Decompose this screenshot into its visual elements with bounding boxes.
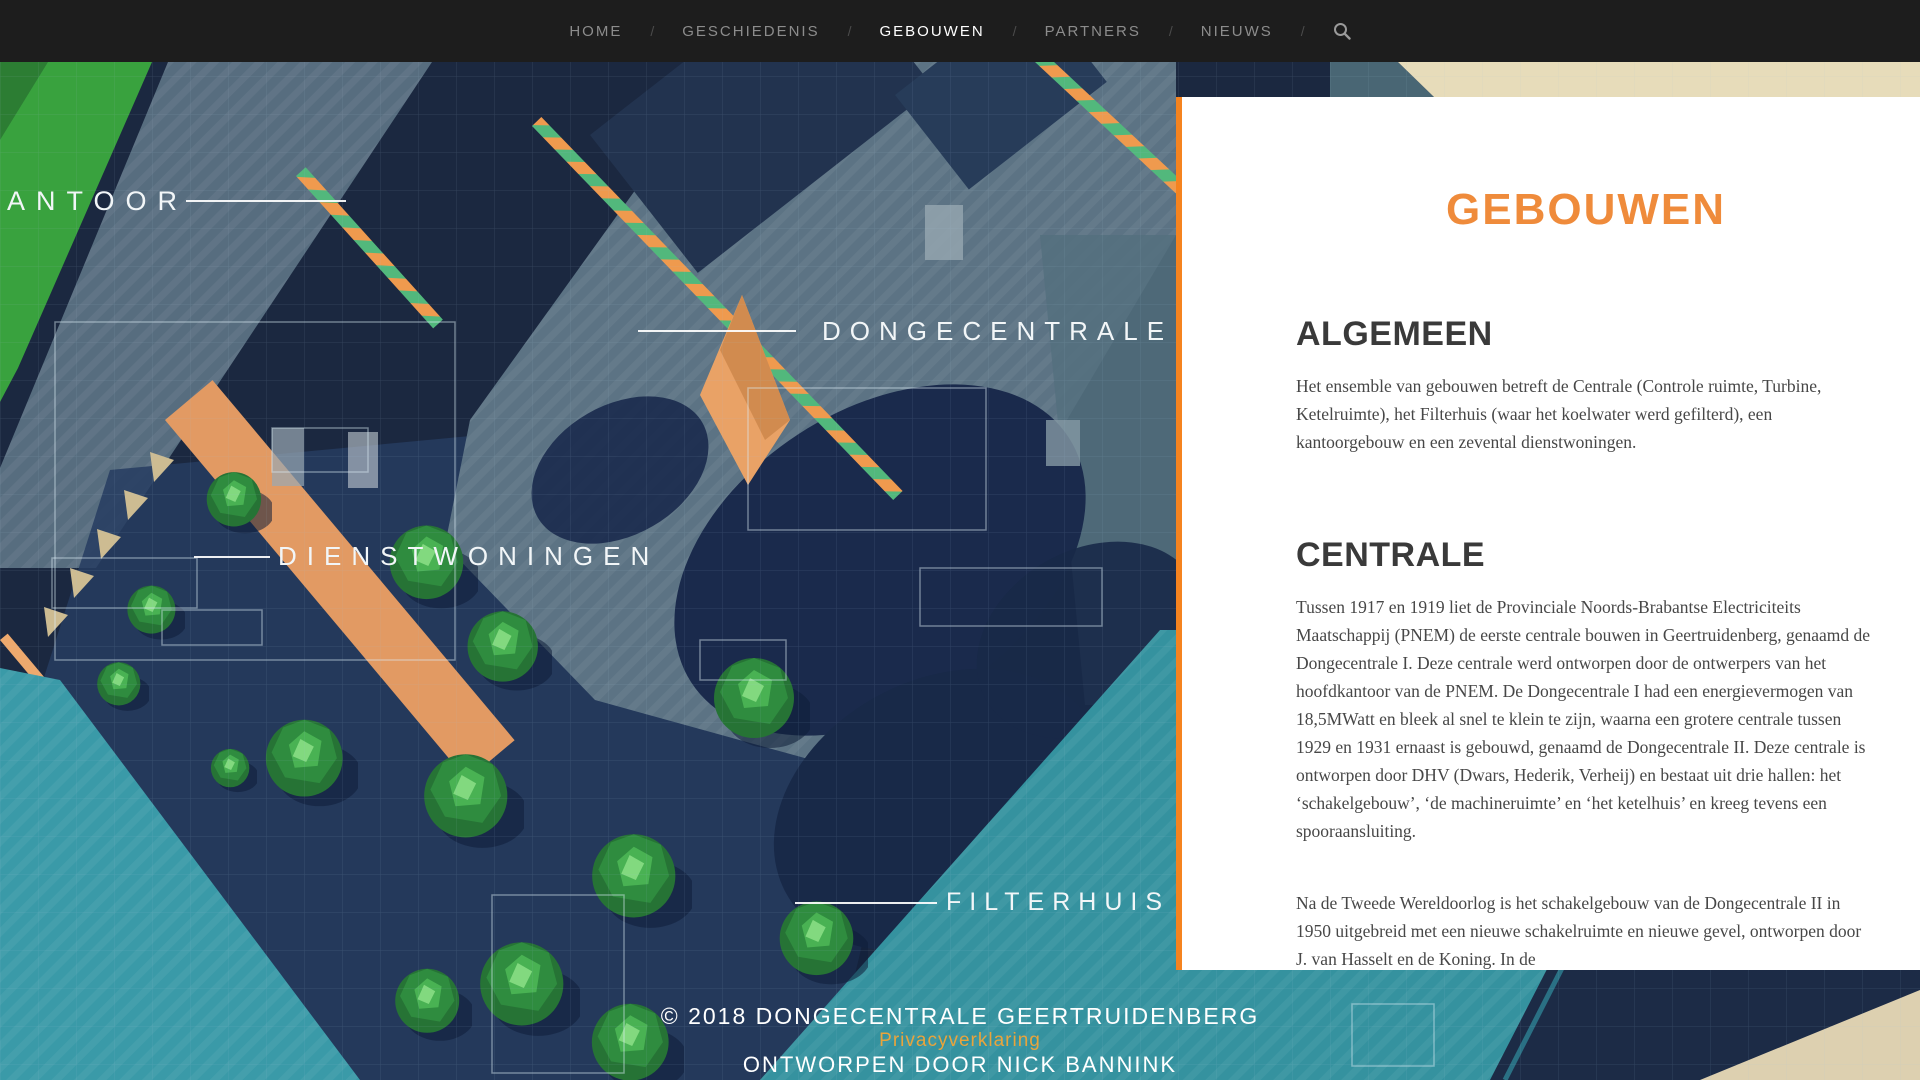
nav-item-home[interactable]: HOME: [569, 23, 622, 40]
content-section-centrale: CENTRALE Tussen 1917 en 1919 liet de Pro…: [1296, 536, 1876, 970]
nav-separator: /: [650, 23, 654, 39]
nav-item-nieuws[interactable]: NIEUWS: [1201, 23, 1273, 40]
section-heading-centrale: CENTRALE: [1296, 536, 1876, 575]
privacy-link[interactable]: Privacyverklaring: [879, 1030, 1041, 1052]
section-paragraph: Tussen 1917 en 1919 liet de Provinciale …: [1296, 593, 1876, 845]
content-section-algemeen: ALGEMEEN Het ensemble van gebouwen betre…: [1296, 315, 1876, 456]
map-label-filterhuis: FILTERHUIS: [946, 888, 1170, 917]
section-paragraph: Het ensemble van gebouwen betreft de Cen…: [1296, 372, 1876, 456]
map-label-dienstwoningen: DIENSTWONINGEN: [278, 541, 659, 572]
map-label-dongecentrale: DONGECENTRALE: [822, 316, 1173, 347]
nav-separator: /: [1013, 23, 1017, 39]
footer: © 2018 DONGECENTRALE GEERTRUIDENBERG Pri…: [0, 1003, 1920, 1078]
content-panel: GEBOUWEN ALGEMEEN Het ensemble van gebou…: [1176, 97, 1920, 970]
nav-item-partners[interactable]: PARTNERS: [1045, 23, 1141, 40]
filterhuis-leader-line: [795, 902, 937, 904]
search-button[interactable]: [1333, 22, 1351, 40]
map-label-kantoor: KANTOOR: [0, 186, 188, 217]
page: KANTOOR DONGECENTRALE DIENSTWONINGEN FIL…: [0, 0, 1920, 1080]
dienstwoningen-leader-line: [194, 556, 270, 558]
nav-item-geschiedenis[interactable]: GESCHIEDENIS: [682, 23, 819, 40]
nav-separator: /: [848, 23, 852, 39]
section-paragraph: Na de Tweede Wereldoorlog is het schakel…: [1296, 889, 1876, 970]
dongecentrale-leader-line: [638, 330, 796, 332]
search-icon: [1333, 22, 1351, 40]
nav-item-gebouwen[interactable]: GEBOUWEN: [879, 23, 984, 40]
nav-separator: /: [1301, 23, 1305, 39]
footer-copyright: © 2018 DONGECENTRALE GEERTRUIDENBERG: [0, 1003, 1920, 1030]
kantoor-leader-line: [186, 200, 346, 202]
footer-credit: ONTWORPEN DOOR NICK BANNINK: [0, 1052, 1920, 1078]
top-navigation: HOME / GESCHIEDENIS / GEBOUWEN / PARTNER…: [0, 0, 1920, 62]
page-title: GEBOUWEN: [1296, 185, 1876, 235]
nav-separator: /: [1169, 23, 1173, 39]
section-heading-algemeen: ALGEMEEN: [1296, 315, 1876, 354]
